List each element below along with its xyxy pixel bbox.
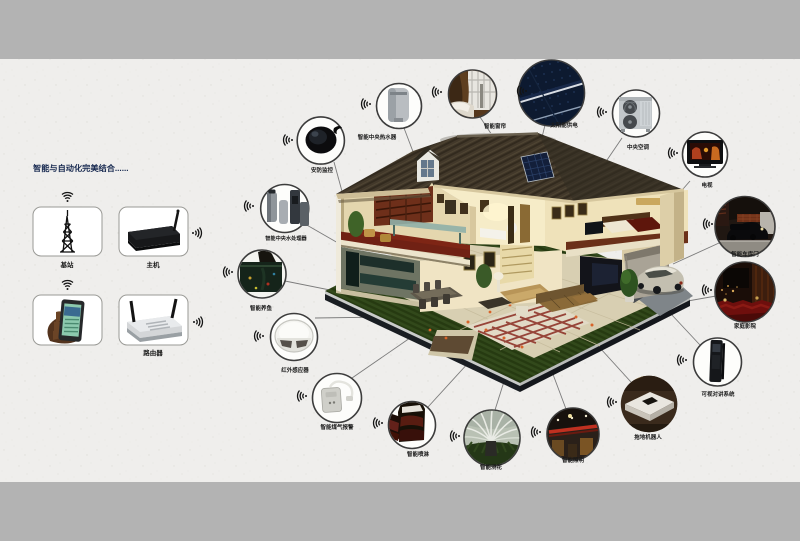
- svg-text:家庭影院: 家庭影院: [734, 322, 757, 330]
- svg-text:太阳能供电: 太阳能供电: [550, 121, 578, 129]
- svg-text:智能中央水处理器: 智能中央水处理器: [265, 234, 307, 242]
- svg-text:智能养鱼: 智能养鱼: [250, 304, 273, 312]
- svg-text:智能窗帘: 智能窗帘: [484, 122, 507, 130]
- svg-text:智能照明: 智能照明: [562, 456, 585, 464]
- svg-text:智能浇花: 智能浇花: [480, 463, 503, 471]
- svg-text:智能中央热水器: 智能中央热水器: [358, 133, 397, 141]
- svg-text:中央空调: 中央空调: [627, 143, 650, 151]
- svg-text:智能煤气报警: 智能煤气报警: [320, 423, 354, 431]
- svg-text:路由器: 路由器: [143, 348, 163, 357]
- svg-text:智能喷淋: 智能喷淋: [407, 450, 430, 458]
- svg-text:拖地机器人: 拖地机器人: [634, 433, 662, 441]
- svg-text:可视对讲系统: 可视对讲系统: [701, 390, 735, 398]
- svg-text:电视: 电视: [701, 181, 713, 189]
- svg-text:安防监控: 安防监控: [311, 166, 334, 174]
- svg-text:基站: 基站: [60, 260, 75, 269]
- svg-text:智能与自动化完美结合......: 智能与自动化完美结合......: [32, 163, 129, 173]
- svg-text:主机: 主机: [147, 260, 161, 269]
- svg-text:红外感应器: 红外感应器: [281, 366, 309, 374]
- svg-text:智能车库门: 智能车库门: [731, 250, 759, 258]
